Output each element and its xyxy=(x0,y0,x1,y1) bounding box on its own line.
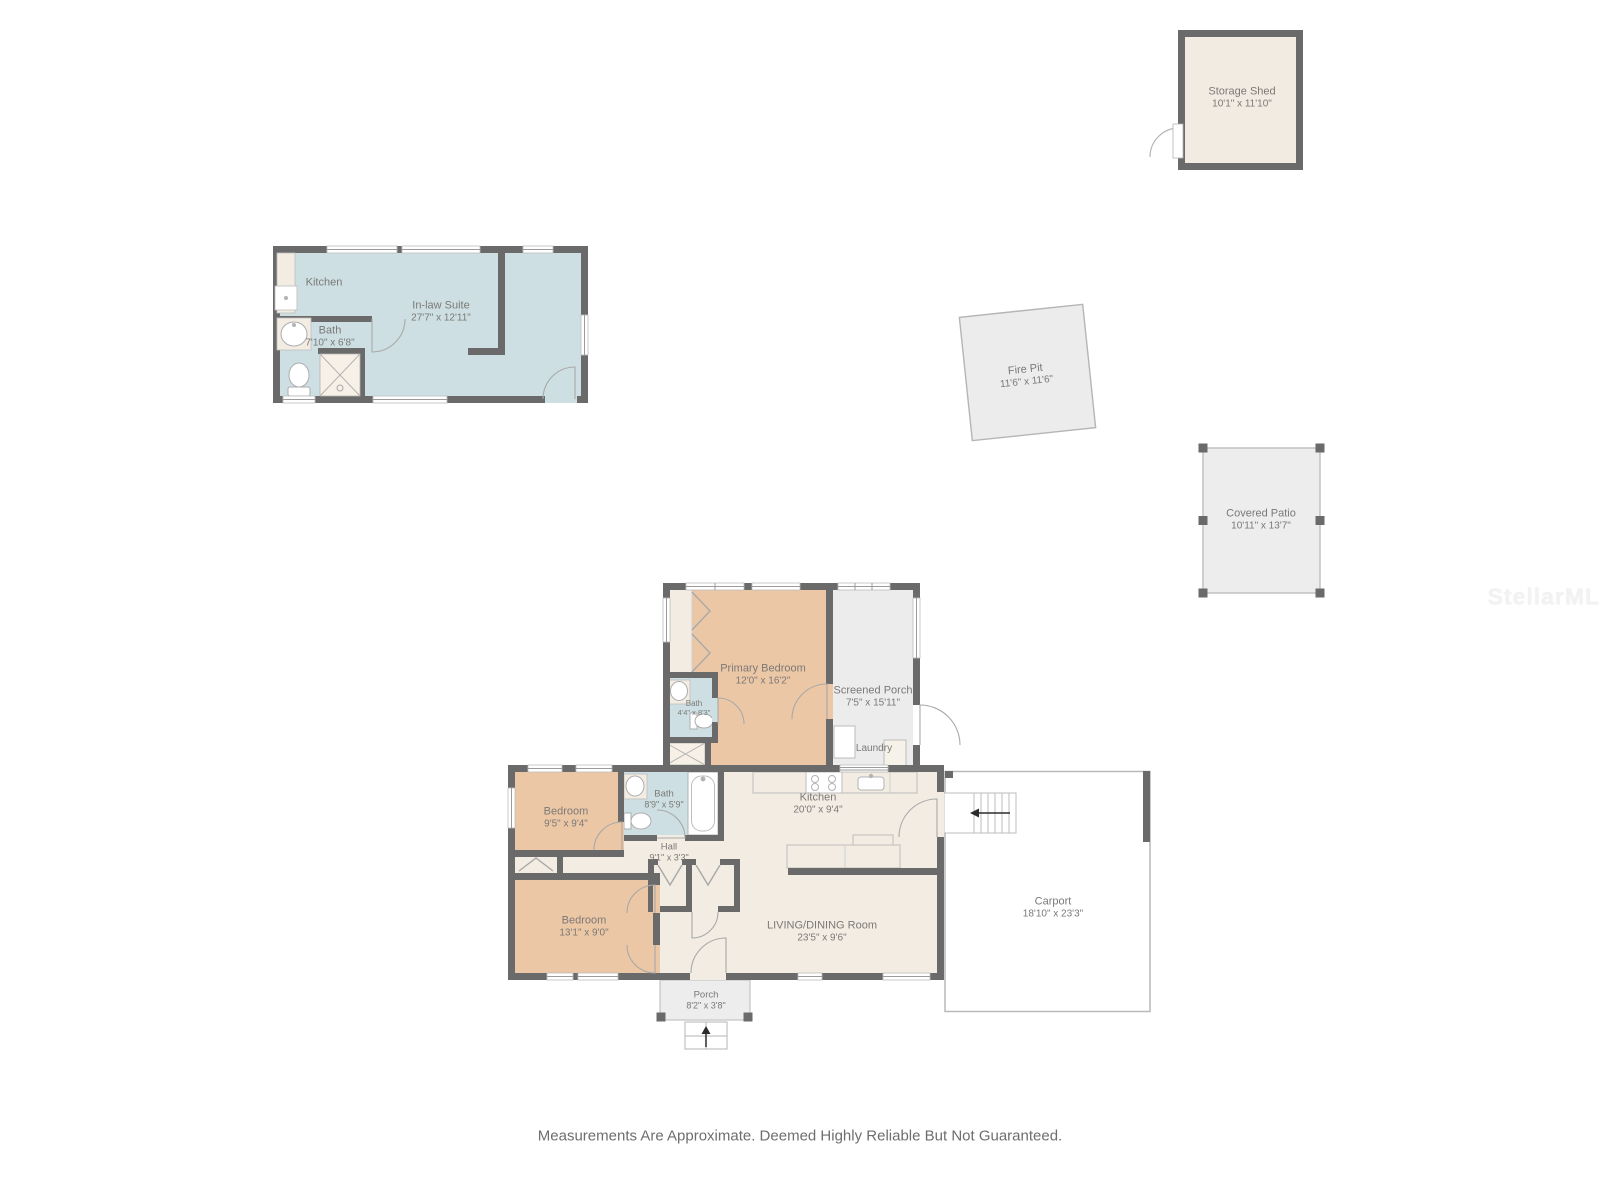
stove xyxy=(806,772,842,793)
laundry-label: Laundry xyxy=(856,743,892,755)
shed-door-leaf xyxy=(1173,124,1183,158)
disclaimer-text: Measurements Are Approximate. Deemed Hig… xyxy=(538,1128,1062,1145)
living-dining-label: LIVING/DINING Room 23'5" x 9'6" xyxy=(767,920,877,945)
stellar-mls-watermark: StellarMLS xyxy=(1488,584,1600,611)
primary-shower xyxy=(666,743,705,765)
floor-plan-page: Storage Shed 10'1" x 11'10" Kitchen Bath… xyxy=(0,0,1600,1200)
floor-plan-drawing xyxy=(0,0,1600,1200)
inlaw-shower xyxy=(320,354,360,396)
hall-label: Hall 9'1" x 3'3" xyxy=(649,841,688,863)
inlaw-kitchen-label: Kitchen xyxy=(306,277,343,290)
covered-patio-label: Covered Patio 10'11" x 13'7" xyxy=(1226,508,1296,533)
screened-porch-label: Screened Porch 7'5" x 15'11" xyxy=(834,685,913,710)
bedroom-small-label: Bedroom 9'5" x 9'4" xyxy=(544,806,589,831)
inlaw-entry-gap xyxy=(545,396,577,403)
porch-exterior-door xyxy=(920,705,960,745)
primary-bedroom-label: Primary Bedroom 12'0" x 16'2" xyxy=(720,663,806,688)
primary-bath-label: Bath 4'4" x 8'3" xyxy=(678,699,711,717)
inlaw-bath-label: Bath 7'10" x 6'8" xyxy=(305,325,354,350)
kitchen-label: Kitchen 20'0" x 9'4" xyxy=(793,792,842,817)
carport-label: Carport 18'10" x 23'3" xyxy=(1023,896,1083,921)
inlaw-toilet xyxy=(289,363,309,387)
front-porch-label: Porch 8'2" x 3'8" xyxy=(686,989,725,1011)
kitchen-peninsula xyxy=(787,845,900,868)
carport-stairs xyxy=(944,793,1016,833)
storage-shed-label: Storage Shed 10'1" x 11'10" xyxy=(1208,86,1275,111)
inlaw-kitchen-counter xyxy=(275,253,297,313)
kitchen-sink xyxy=(858,777,884,790)
hall-bath-label: Bath 8'9" x 5'9" xyxy=(644,788,683,810)
primary-closet-floor xyxy=(670,590,692,672)
bedroom-large-label: Bedroom 13'1" x 9'0" xyxy=(559,915,608,940)
inlaw-suite-label: In-law Suite 27'7" x 12'11" xyxy=(411,300,471,325)
